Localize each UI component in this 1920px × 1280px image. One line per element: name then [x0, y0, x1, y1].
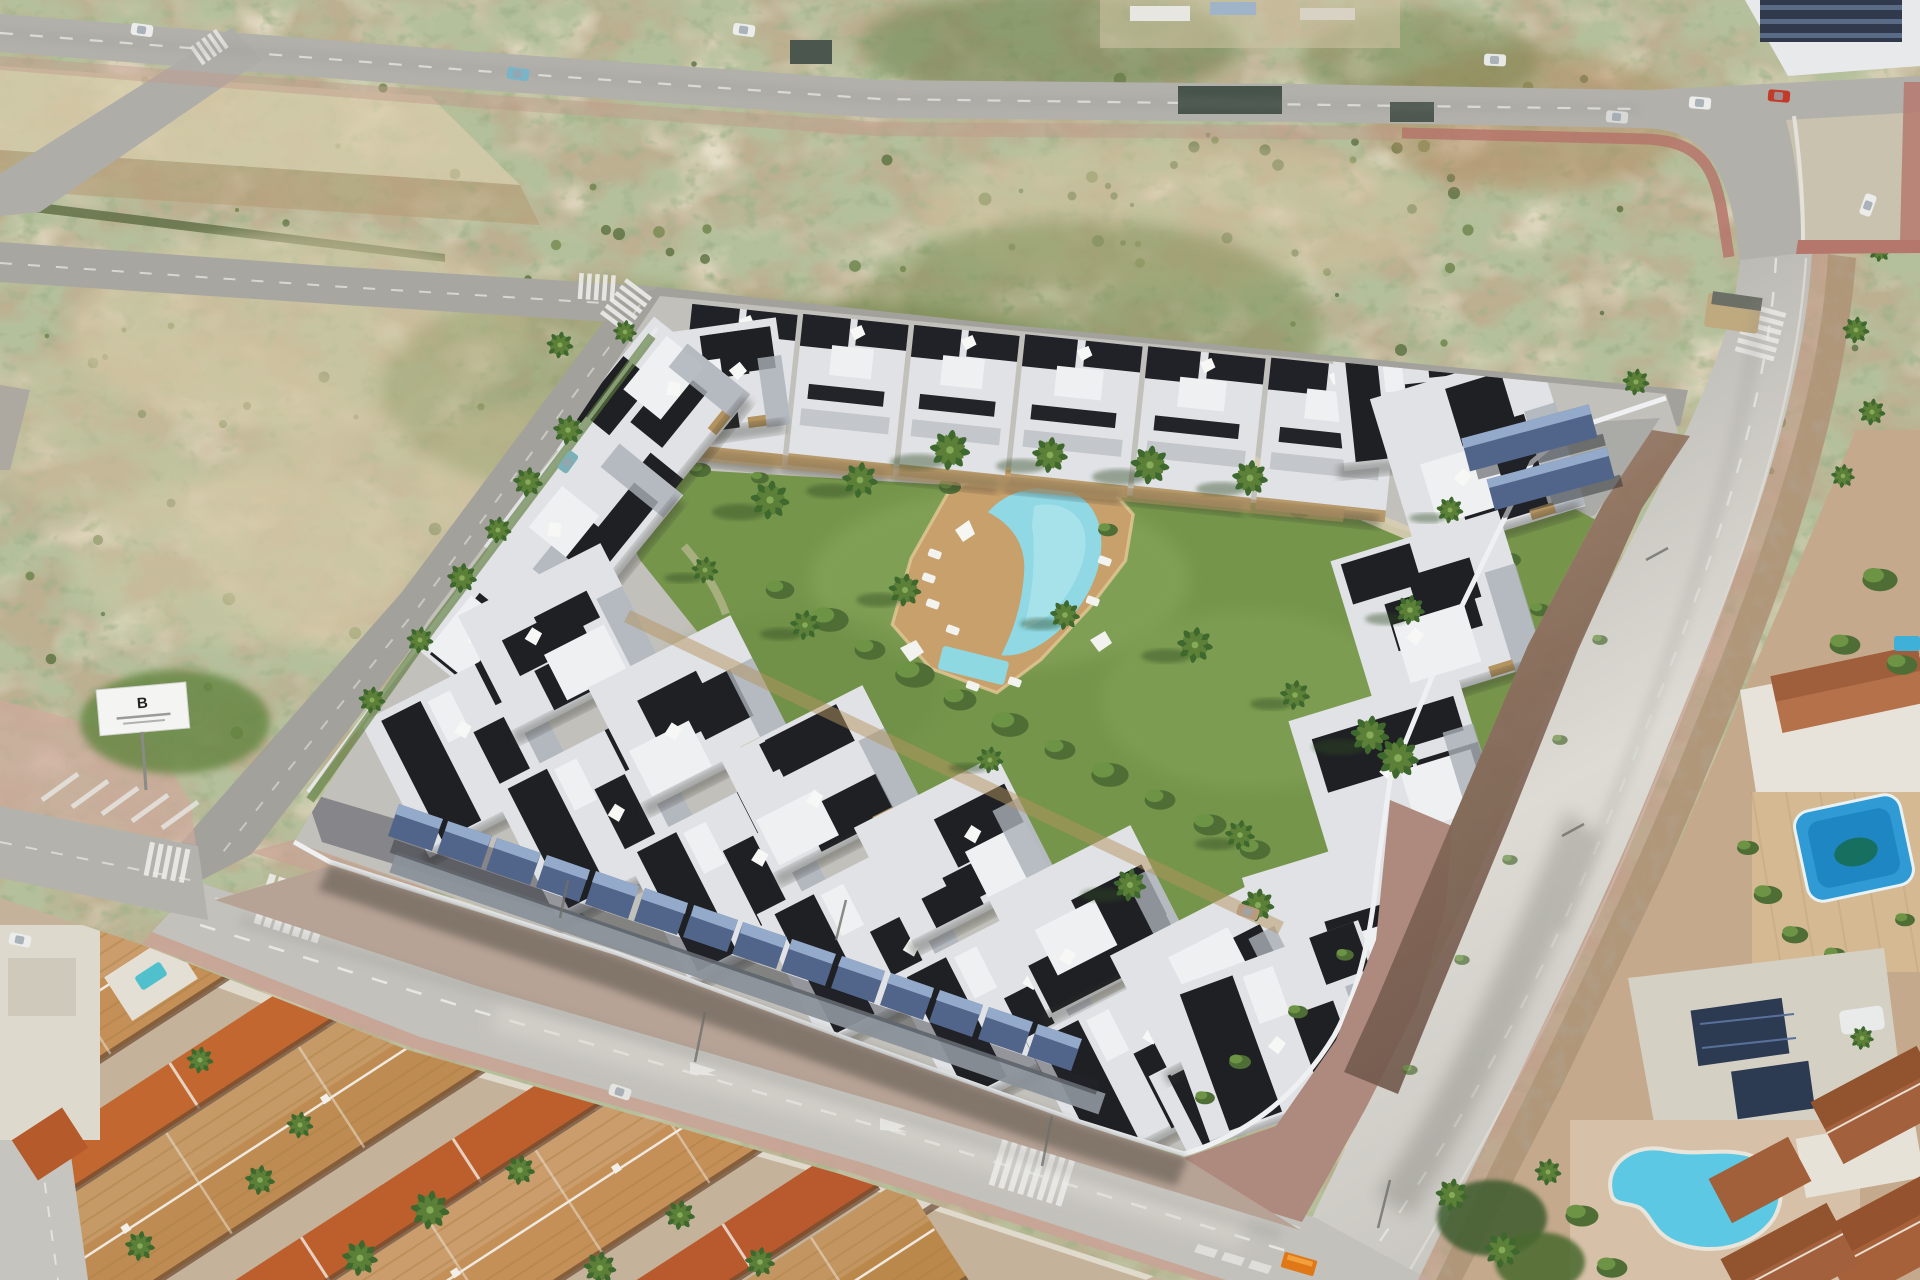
svg-text:B: B — [136, 694, 148, 712]
